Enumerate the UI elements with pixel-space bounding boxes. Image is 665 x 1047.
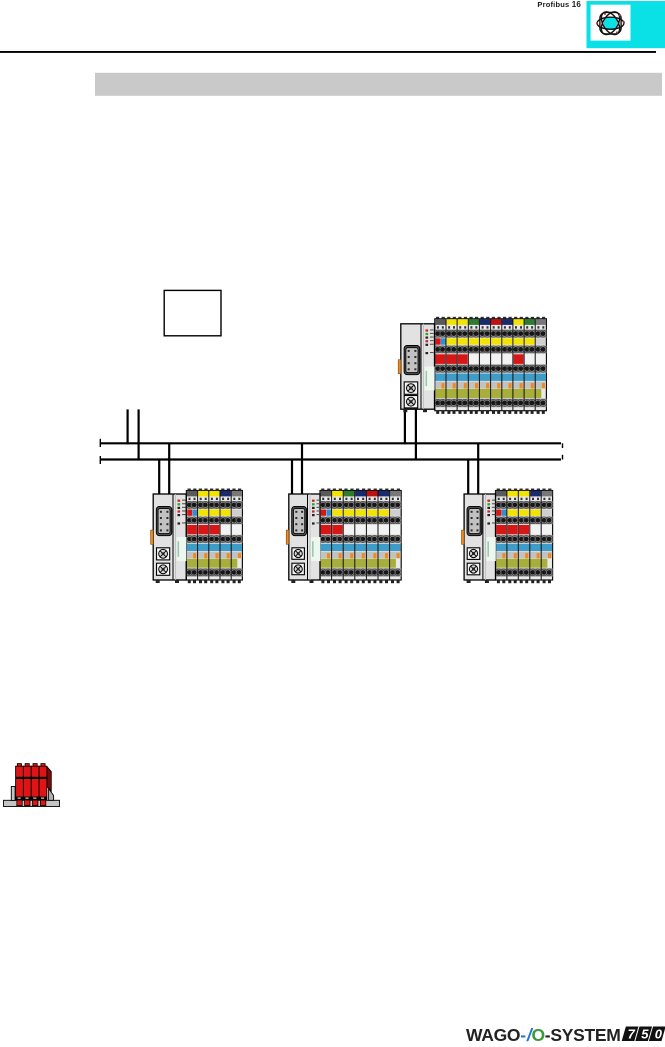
svg-text:5: 5 — [641, 1026, 649, 1041]
svg-text:7: 7 — [628, 1026, 636, 1041]
svg-text:0: 0 — [655, 1026, 663, 1041]
